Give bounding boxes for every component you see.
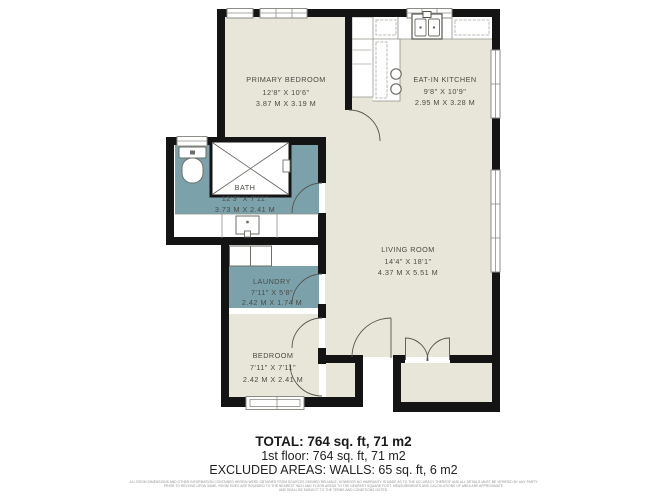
sink-drain-dot — [419, 26, 421, 28]
stove-burner — [391, 69, 401, 79]
room-label-primary-bedroom: PRIMARY BEDROOM — [246, 75, 325, 84]
toilet-flush — [190, 151, 195, 155]
room-dims-imperial: 7'11" X 5'8" — [251, 288, 293, 297]
wall-left-upper — [217, 9, 225, 145]
room-dims-metric: 3.87 M X 3.19 M — [256, 99, 316, 108]
floor-plan-drawing: PRIMARY BEDROOM 12'8" X 10'6" 3.87 M X 3… — [0, 0, 667, 500]
room-dims-metric: 2.42 M X 2.41 M — [243, 375, 303, 384]
room-label-laundry: LAUNDRY — [253, 277, 291, 286]
disclaimer-line: AND SHALL BE SUBJECT TO THE TERMS AND CO… — [0, 488, 667, 492]
room-dims-imperial: 12'3" X 7'11" — [222, 194, 269, 203]
window-bedroom — [246, 397, 304, 410]
wall-closet-top — [318, 355, 363, 363]
total-area: TOTAL: 764 sq. ft, 71 m2 — [0, 434, 667, 449]
wall-bath-left — [166, 137, 174, 245]
disclaimer-fine-print: ALL ROOM DIMENSIONS AND OTHER INFORMATIO… — [0, 480, 667, 492]
vanity-faucet — [245, 231, 251, 237]
room-label-bedroom: BEDROOM — [253, 351, 294, 360]
wall-middle-a — [318, 137, 326, 183]
room-label-bath: BATH — [235, 183, 256, 192]
washer — [230, 246, 251, 266]
wall-left-lower — [221, 245, 229, 407]
room-dims-imperial: 14'4" X 18'1" — [384, 257, 431, 266]
wall-bath-bottom — [166, 237, 326, 245]
pantry-cabinet — [352, 17, 373, 97]
dryer — [251, 246, 272, 266]
wall-middle-c — [318, 304, 326, 318]
room-label-eat-in-kitchen: EAT-IN KITCHEN — [413, 75, 476, 84]
room-dims-imperial: 12'8" X 10'6" — [262, 88, 309, 97]
wall-bedroom-closet-right — [355, 363, 363, 407]
kitchen-faucet — [423, 12, 431, 18]
room-label-living-room: LIVING ROOM — [381, 245, 435, 254]
room-dims-metric: 3.73 M X 2.41 M — [215, 205, 275, 214]
vanity-faucet-dot — [246, 221, 249, 224]
toilet-bowl — [182, 158, 203, 183]
living-room-floor — [325, 97, 493, 357]
stove-burner — [391, 84, 401, 94]
wall-top — [217, 9, 500, 17]
entry-closet-floor — [401, 363, 492, 403]
wall-closet-bottom — [393, 402, 500, 412]
bedroom-closet-floor — [326, 363, 355, 398]
wall-middle-b — [318, 213, 326, 274]
floor-plan-page: PRIMARY BEDROOM 12'8" X 10'6" 3.87 M X 3… — [0, 0, 667, 500]
shower-valve — [283, 160, 290, 172]
room-dims-metric: 2.42 M X 1.74 M — [242, 298, 302, 307]
room-dims-imperial: 7'11" X 7'11" — [250, 363, 296, 372]
first-floor-area: 1st floor: 764 sq. ft, 71 m2 — [0, 449, 667, 463]
area-summary: TOTAL: 764 sq. ft, 71 m2 1st floor: 764 … — [0, 434, 667, 492]
wall-primary-bedroom-right — [345, 9, 352, 110]
room-dims-metric: 2.95 M X 3.28 M — [415, 98, 475, 107]
excluded-areas: EXCLUDED AREAS: WALLS: 65 sq. ft, 6 m2 — [0, 463, 667, 477]
room-dims-imperial: 9'8" X 10'9" — [424, 87, 467, 96]
sink-drain-dot — [433, 26, 435, 28]
wall-living-bottom-b — [450, 355, 500, 363]
room-dims-metric: 4.37 M X 5.51 M — [378, 268, 438, 277]
